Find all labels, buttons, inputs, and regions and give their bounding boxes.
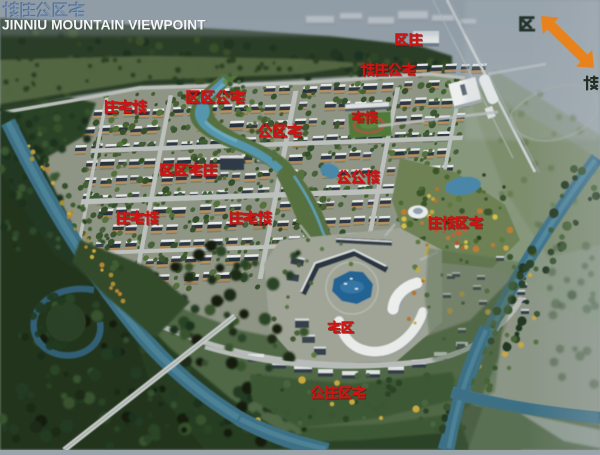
svg-text:JINNIU MOUNTAIN VIEWPOINT: JINNIU MOUNTAIN VIEWPOINT (2, 17, 206, 32)
